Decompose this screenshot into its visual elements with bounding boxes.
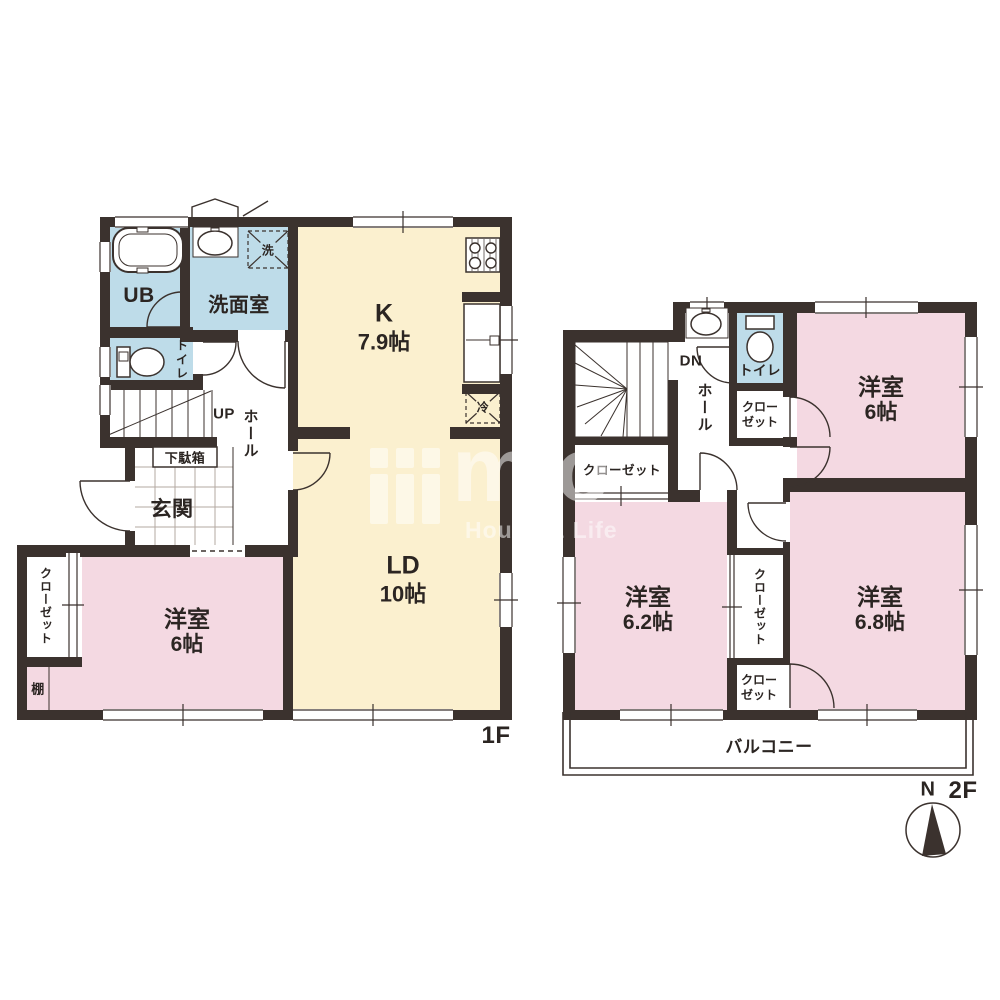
- label-wash: 洗: [262, 242, 275, 259]
- label-closet-mid: クローゼット: [752, 568, 769, 646]
- label-dn: DN: [680, 353, 703, 370]
- label-closet-w: クローゼット: [583, 460, 661, 479]
- label-north: N: [921, 779, 936, 802]
- kitchen-counter: [464, 304, 500, 382]
- label-r68: 洋室 6.8帖: [855, 584, 905, 636]
- stove-icon: [466, 238, 500, 272]
- label-closet-s: クロー ゼット: [741, 673, 777, 703]
- window-1f-top-ub: [115, 216, 188, 228]
- washbasin-icon-2f: [686, 308, 728, 338]
- stairs-1f: [106, 390, 212, 437]
- bay-roof-mark: [192, 199, 268, 217]
- window-1f-left-ub: [99, 242, 111, 272]
- door-genkan: [80, 481, 130, 531]
- stairs-2f: [575, 342, 668, 437]
- label-kitchen: K 7.9帖: [358, 299, 411, 354]
- label-r6: 洋室 6帖: [858, 374, 904, 426]
- label-getabako: 下駄箱: [165, 448, 206, 467]
- door-r68: [748, 503, 786, 541]
- label-genkan: 玄関: [151, 493, 194, 523]
- toilet-icon-2f: [746, 316, 774, 362]
- window-1f-left-wc: [99, 347, 111, 377]
- window-1f-left-stairs: [99, 385, 111, 415]
- toilet-icon-1f: [117, 347, 164, 377]
- label-hall-2f: ホール: [694, 383, 715, 434]
- label-ld: LD 10帖: [380, 551, 426, 606]
- door-wc-2f: [697, 347, 733, 383]
- label-wc-2f: トイレ: [739, 359, 781, 379]
- floorplan-page: UB 洗面室 洗 トイレ UP ホール 下駄箱 玄関 K 7.9帖 冷 LD 1…: [0, 0, 1000, 1000]
- door-r62: [700, 453, 737, 490]
- label-senmen: 洗面室: [208, 289, 270, 318]
- label-hall-1f: ホール: [240, 409, 261, 460]
- label-ub: UB: [123, 284, 154, 308]
- door-wc-1f: [203, 342, 236, 375]
- label-r62: 洋室 6.2帖: [623, 584, 673, 636]
- label-closet-1f: クローゼット: [38, 567, 55, 645]
- label-yoshitsu-1f: 洋室 6帖: [164, 606, 210, 658]
- label-up: UP: [213, 406, 235, 423]
- label-tana: 棚: [31, 679, 45, 698]
- label-floor-2f: 2F: [948, 777, 977, 805]
- washbasin-icon-1f: [193, 227, 238, 257]
- label-closet-ne: クロー ゼット: [742, 400, 778, 430]
- label-fridge: 冷: [477, 399, 490, 416]
- label-floor-1f: 1F: [481, 722, 510, 750]
- label-balcony: バルコニー: [725, 733, 812, 758]
- label-wc-1f: トイレ: [174, 339, 191, 381]
- door-senmen: [238, 341, 285, 388]
- bathtub-icon: [113, 227, 183, 273]
- compass: [906, 803, 960, 857]
